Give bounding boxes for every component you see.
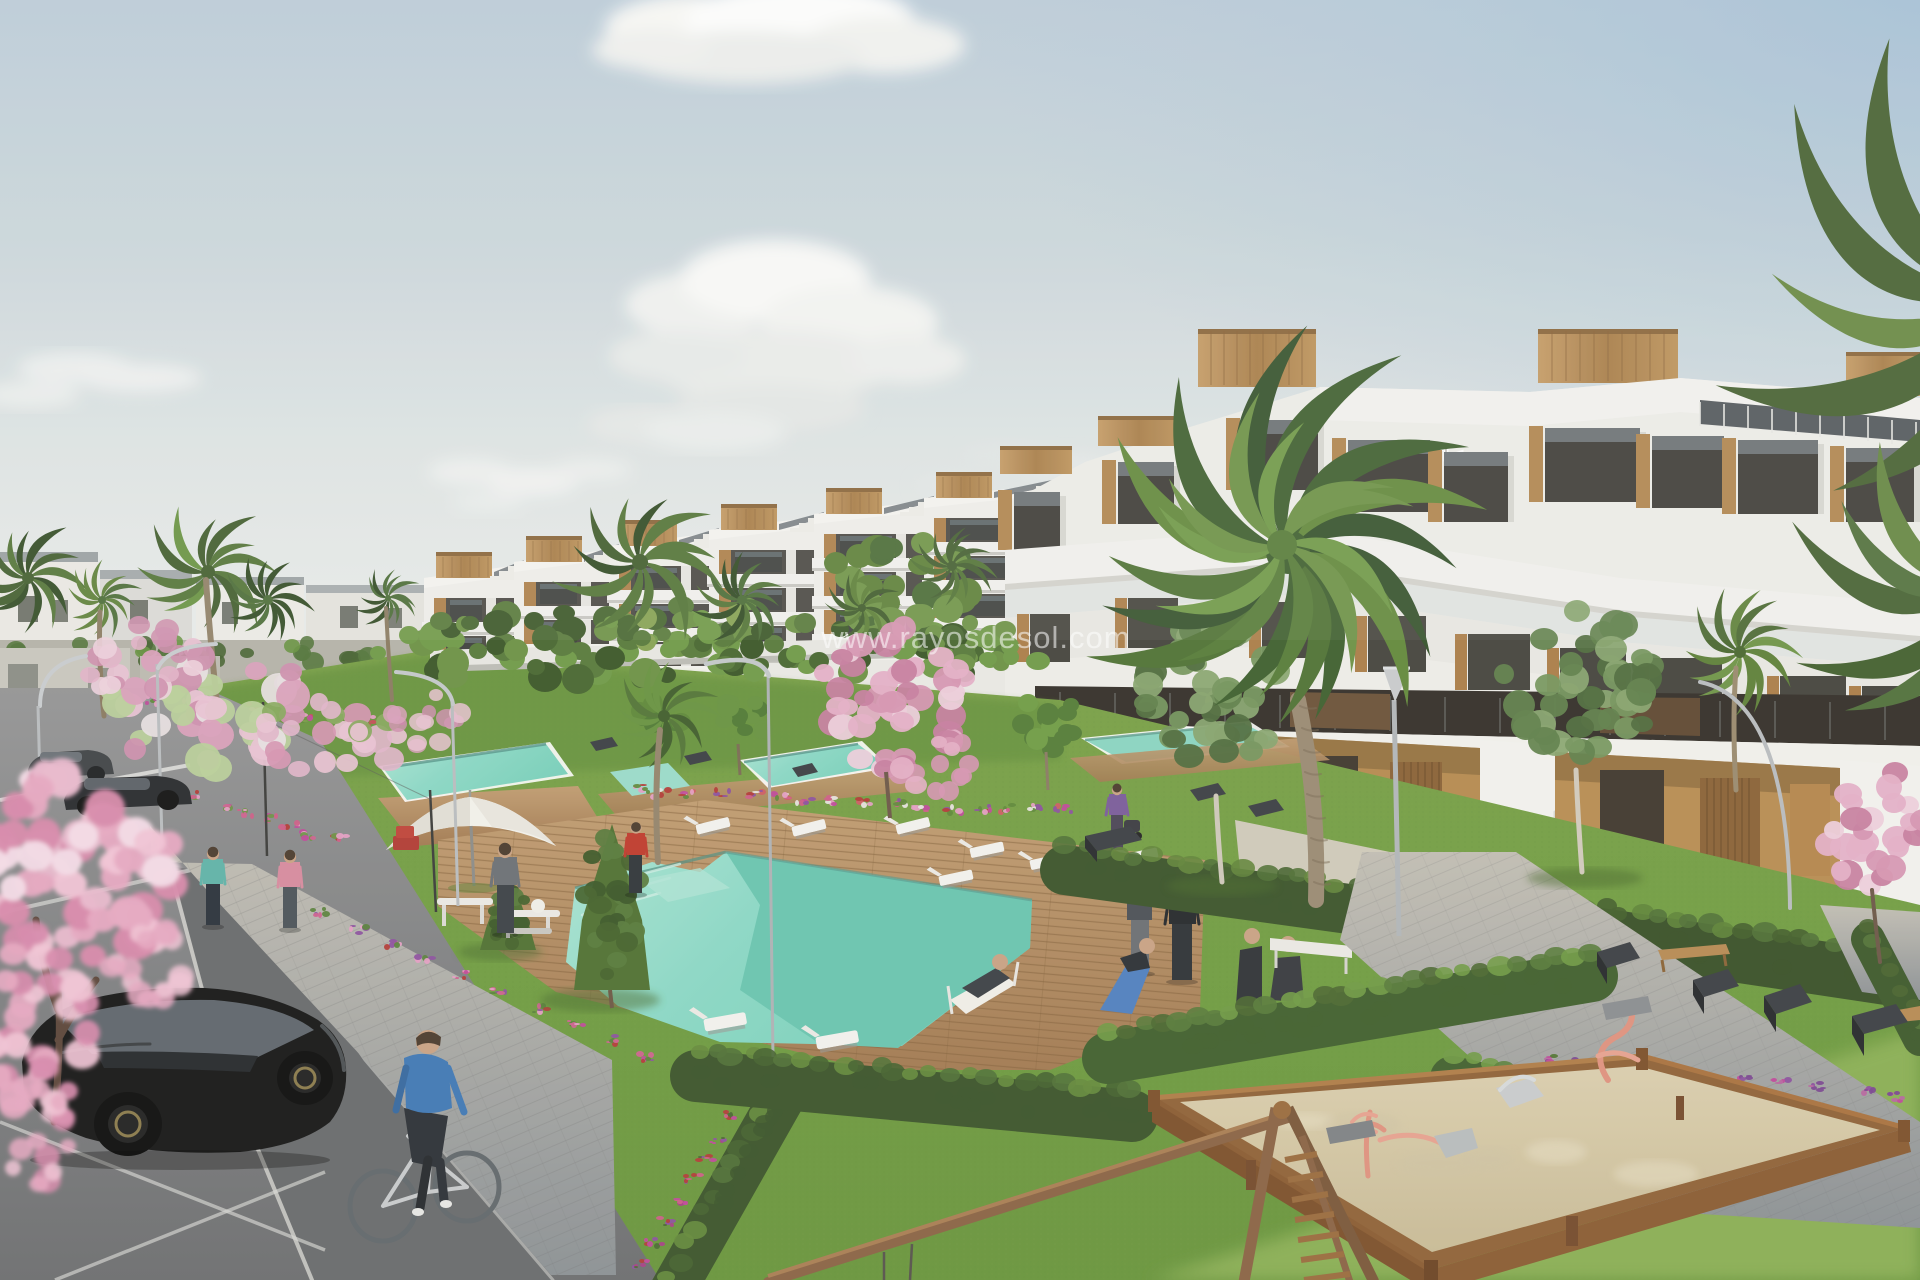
svg-text:www.rayosdesol.com: www.rayosdesol.com bbox=[820, 620, 1130, 655]
